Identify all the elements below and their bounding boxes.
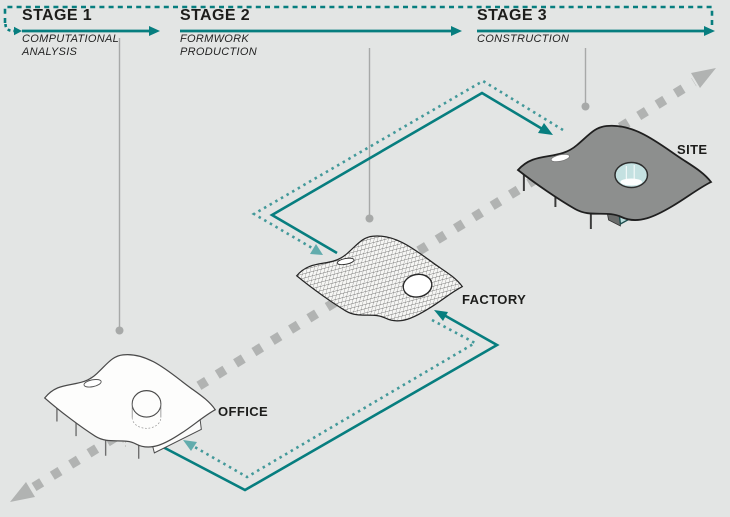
flow-factory-to-site-line [272, 93, 542, 253]
stage-timeline-lines [22, 26, 715, 36]
stage-2-title: STAGE 2 [180, 7, 257, 25]
factory-inbound-arrow-icon [434, 310, 448, 321]
stage1-callout-line [116, 38, 124, 335]
flow-office-to-factory-line [161, 316, 497, 490]
workflow-diagram-svg [0, 0, 730, 517]
factory-feedback-arrow-icon [310, 244, 323, 255]
site-label: SITE [677, 142, 708, 157]
stage2-arrow-icon [451, 26, 462, 36]
flow-factory-to-office-line [194, 320, 475, 477]
stage-1-heading: STAGE 1 COMPUTATIONAL ANALYSIS [22, 7, 119, 58]
stage-1-subtitle-line2: ANALYSIS [22, 46, 119, 59]
site-glass-skylight [615, 163, 648, 188]
stage3-callout-line [582, 48, 590, 111]
stage-3-heading: STAGE 3 CONSTRUCTION [477, 7, 569, 46]
stage1-arrow-icon [149, 26, 160, 36]
stage-2-heading: STAGE 2 FORMWORK PRODUCTION [180, 7, 257, 58]
office-feedback-arrow-icon [183, 440, 197, 451]
factory-structure [297, 236, 463, 321]
stage-1-title: STAGE 1 [22, 7, 119, 25]
loop-return-arrow-icon [14, 27, 22, 35]
factory-label: FACTORY [462, 292, 526, 307]
callout-dot-icon [582, 103, 590, 111]
stage-3-title: STAGE 3 [477, 7, 569, 25]
callout-dot-icon [366, 215, 374, 223]
factory-mesh [297, 236, 463, 321]
workflow-diagram: STAGE 1 COMPUTATIONAL ANALYSIS STAGE 2 F… [0, 0, 730, 517]
stage-2-subtitle-line1: FORMWORK [180, 33, 257, 46]
office-label: OFFICE [218, 404, 268, 419]
stage-3-subtitle-line1: CONSTRUCTION [477, 33, 569, 46]
stage-2-subtitle-line2: PRODUCTION [180, 46, 257, 59]
flow-site-to-factory-line [254, 81, 563, 249]
stage3-arrow-icon [704, 26, 715, 36]
stage-1-subtitle-line1: COMPUTATIONAL [22, 33, 119, 46]
arrow-sw-icon [10, 482, 35, 502]
stage2-callout-line [366, 48, 374, 223]
arrow-ne-icon [691, 68, 716, 88]
callout-dot-icon [116, 327, 124, 335]
